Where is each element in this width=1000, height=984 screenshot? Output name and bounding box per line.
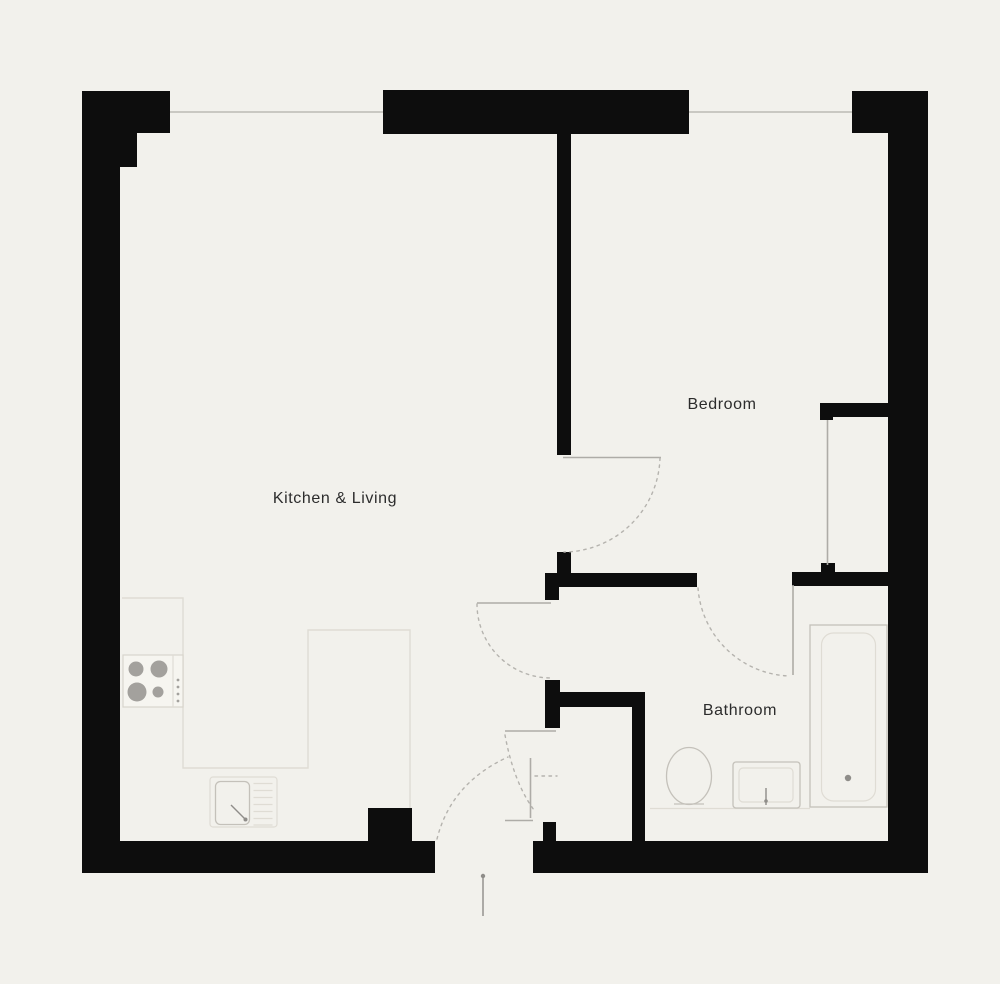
washbasin: [733, 762, 800, 808]
wall-hall-closet-side: [632, 707, 645, 842]
wall-hall-closet-top: [545, 692, 645, 707]
burner-icon: [129, 662, 144, 677]
wall-bathroom-top: [545, 573, 697, 587]
kitchen-sink: [210, 777, 277, 827]
bathtub-drain-icon: [845, 775, 851, 781]
toilet-bowl-icon: [667, 748, 712, 805]
hall-closet-door-swing: [505, 735, 534, 810]
wall-top-left-step: [82, 133, 137, 167]
room-labels: Kitchen & Living Bedroom Bathroom: [273, 396, 777, 719]
wall-bathroom-top-stub-down: [545, 587, 559, 600]
bedroom-door-swing: [564, 458, 660, 552]
stove-knob-icon: [177, 693, 180, 696]
floorplan-svg: Kitchen & Living Bedroom Bathroom: [0, 0, 1000, 984]
entrance-arrow-head: [481, 874, 485, 878]
wall-right: [888, 133, 928, 873]
exterior-walls: [82, 90, 928, 873]
bathroom-door-swing: [698, 588, 789, 676]
entrance-door-swing: [437, 757, 508, 839]
wall-top-center: [383, 90, 689, 134]
entrance-arrow: [481, 874, 485, 916]
burner-icon: [128, 683, 147, 702]
bathtub: [810, 625, 887, 807]
wall-bottom-left: [82, 841, 435, 873]
floorplan-canvas: Kitchen & Living Bedroom Bathroom: [0, 0, 1000, 984]
burner-icon: [153, 687, 164, 698]
sink-drainboard: [254, 784, 273, 826]
stove-knob-icon: [177, 686, 180, 689]
wall-closet-lower: [792, 572, 888, 586]
sink-drain-icon: [244, 818, 248, 822]
burner-icon: [151, 661, 168, 678]
wall-top-left-corner: [82, 91, 170, 133]
wall-bottom-right: [533, 841, 928, 873]
stove-knob-icon: [177, 700, 180, 703]
wall-bathroom-top-stub-up: [557, 552, 571, 573]
interior-walls: [545, 133, 888, 842]
wall-bottom-step-block: [368, 808, 412, 841]
room-label-bedroom: Bedroom: [687, 396, 756, 413]
kitchen-door-swing: [477, 604, 551, 678]
washbasin-drain-icon: [764, 799, 768, 803]
toilet: [667, 748, 712, 805]
sink-faucet-icon: [231, 805, 245, 819]
stove-knob-icon: [177, 679, 180, 682]
room-label-bathroom: Bathroom: [703, 702, 777, 719]
wall-top-right-corner: [852, 91, 928, 133]
wall-left: [82, 167, 120, 873]
wall-entrance-jamb: [543, 822, 556, 842]
stove: [123, 655, 183, 707]
wall-closet-upper-cap: [820, 403, 833, 420]
room-label-kitchen-living: Kitchen & Living: [273, 490, 397, 507]
wall-bedroom-partition: [557, 133, 571, 455]
